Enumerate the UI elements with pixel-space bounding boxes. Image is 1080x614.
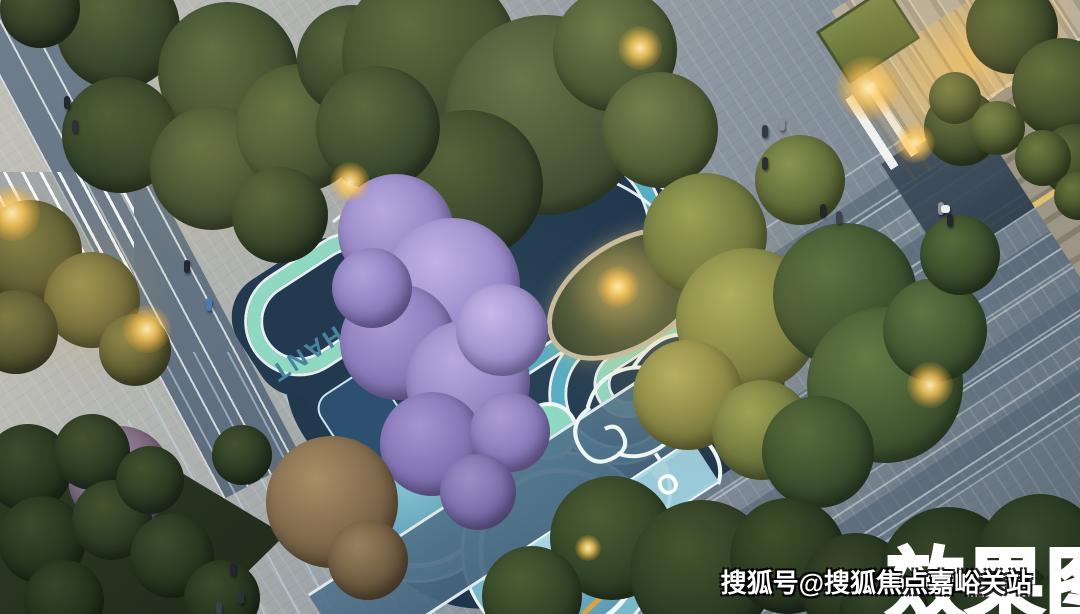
watermark-text: 搜狐号@搜狐焦点嘉峪关站 bbox=[721, 563, 1032, 600]
pedestrian bbox=[762, 125, 768, 138]
pedestrian bbox=[230, 563, 236, 576]
pedestrian bbox=[184, 260, 190, 273]
pedestrian bbox=[947, 214, 953, 227]
pedestrian bbox=[779, 118, 785, 131]
pedestrian bbox=[238, 591, 244, 604]
aerial-rendering-scene: LET'S GO ELEPHANT 效果图 搜狐号@搜狐焦点嘉峪关站 bbox=[0, 0, 1080, 614]
pedestrian bbox=[941, 205, 950, 213]
pedestrian bbox=[836, 211, 842, 224]
pedestrian bbox=[216, 602, 222, 614]
pedestrian bbox=[762, 157, 768, 170]
pedestrian bbox=[206, 298, 212, 311]
pedestrian bbox=[64, 96, 70, 109]
pedestrians-layer bbox=[0, 0, 1080, 614]
pedestrian bbox=[72, 120, 78, 133]
pedestrian bbox=[820, 204, 826, 217]
